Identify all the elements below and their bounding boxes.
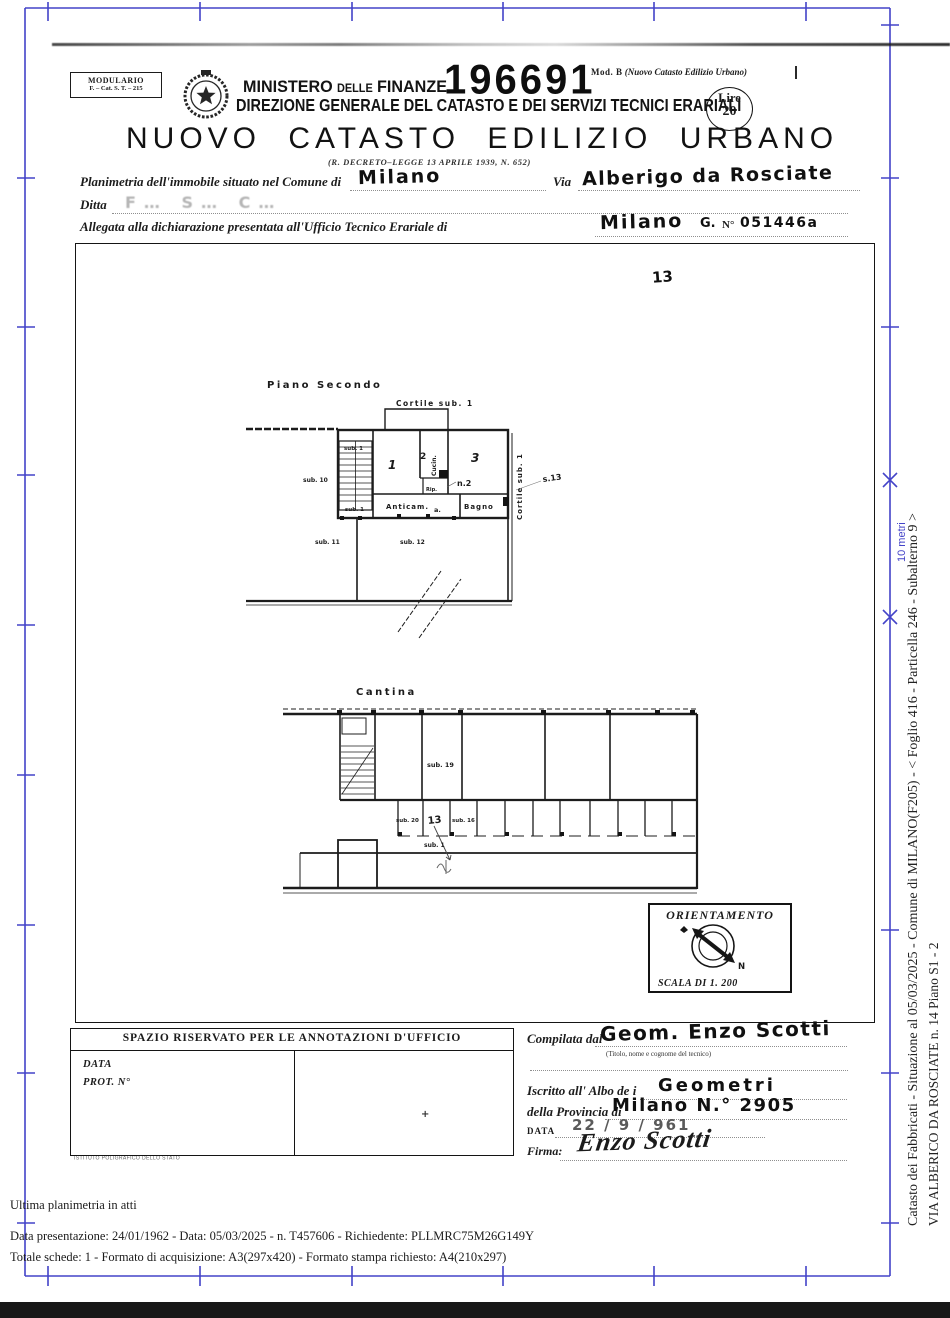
ministry-word3: FINANZE xyxy=(377,77,447,96)
pencil-n2: n.2 xyxy=(457,479,471,488)
direzione-title: DIREZIONE GENERALE DEL CATASTO E DEI SER… xyxy=(236,96,741,116)
mod-b-suffix: (Nuovo Catasto Edilizio Urbano) xyxy=(625,67,747,77)
dotted-fill-line xyxy=(530,1070,848,1071)
cantina-title: Cantina xyxy=(356,687,417,698)
signature-handwritten: Enzo Scotti xyxy=(576,1124,714,1159)
bollo-value: 20 xyxy=(707,105,752,119)
compass-icon: N xyxy=(650,919,790,973)
data-label: DATA xyxy=(527,1126,555,1136)
room1-label: 1 xyxy=(388,458,396,472)
annotations-prot-label: PROT. N° xyxy=(83,1077,130,1088)
rip-label: Rip. xyxy=(426,487,437,493)
orientation-box: ORIENTAMENTO N SCALA DI 1. 200 xyxy=(648,903,792,993)
bottom-bar xyxy=(0,1302,950,1318)
room2-label: 2 xyxy=(420,452,426,462)
mod-b-label: Mod. B (Nuovo Catasto Edilizio Urbano) xyxy=(591,67,747,77)
sub20-label: sub. 20 xyxy=(396,818,419,824)
scale-label: SCALA DI 1. 200 xyxy=(658,978,738,989)
ministry-title: MINISTERO DELLE FINANZE xyxy=(243,77,447,97)
stray-mark xyxy=(795,66,797,79)
bollo-lire: Lire xyxy=(707,92,752,105)
ministry-word2: DELLE xyxy=(337,83,373,95)
comune-handwritten: Milano xyxy=(358,165,442,189)
piano-secondo-plan: Piano Secondo Cortile sub. 1 xyxy=(246,380,562,638)
compilata-hint: (Titolo, nome e cognome del tecnico) xyxy=(606,1050,711,1058)
pencil-13-cantina: 13 xyxy=(427,815,442,827)
provincia-handwritten: Milano N.° 2905 xyxy=(612,1095,796,1116)
cortile-right-label: Cortile sub. 1 xyxy=(516,453,524,520)
cantina-pillar-marks xyxy=(337,710,695,836)
stair-sub-bottom-label: sub. 1 xyxy=(345,507,364,513)
cantina-walls xyxy=(283,709,697,893)
ministry-word1: MINISTERO xyxy=(243,77,333,96)
sub16-label: sub. 16 xyxy=(452,818,475,824)
printer-credit: ISTITUTO POLIGRAFICO DELLO STATO xyxy=(74,1156,180,1161)
ufficio-handwritten: Milano xyxy=(600,210,684,234)
cucina-label: Cucin. xyxy=(431,455,438,476)
door-note-label: a. xyxy=(434,506,441,514)
modulario-box: MODULARIO F. – Cat. S. T. – 215 xyxy=(70,72,162,98)
margin-vertical-text-1: Catasto dei Fabbricati - Situazione al 0… xyxy=(906,513,922,1226)
firma-label: Firma: xyxy=(527,1144,562,1159)
via-label: Via xyxy=(553,174,571,190)
dotted-fill-line xyxy=(350,190,546,191)
ditta-label: Ditta xyxy=(80,197,107,213)
dotted-fill-line xyxy=(595,236,848,237)
annotations-header: SPAZIO RISERVATO PER LE ANNOTAZIONI D'UF… xyxy=(71,1029,513,1051)
anticamera-label: Anticam. xyxy=(386,503,429,511)
mod-b-prefix: Mod. B xyxy=(591,67,623,77)
sub19-label: sub. 19 xyxy=(427,761,454,769)
sub12-label: sub. 12 xyxy=(400,539,425,546)
sub1-cantina-label: sub. 1 xyxy=(424,842,445,849)
margin-vertical-text-2: VIA ALBERICO DA ROSCIATE n. 14 Piano S1 … xyxy=(926,942,942,1226)
bagno-label: Bagno xyxy=(464,503,494,511)
comune-label: Planimetria dell'immobile situato nel Co… xyxy=(80,174,341,190)
pencil-s13: s.13 xyxy=(542,472,562,484)
scan-smudge-line xyxy=(52,43,950,46)
ditta-handwritten-faint: F… S… C… xyxy=(125,193,282,212)
footer-line-3: Totale schede: 1 - Formato di acquisizio… xyxy=(10,1250,506,1265)
annotations-divider xyxy=(294,1050,295,1155)
room3-label: 3 xyxy=(471,451,479,465)
dotted-fill-line xyxy=(595,1046,847,1047)
dotted-fill-line xyxy=(112,213,848,214)
ufficio-label: Allegata alla dichiarazione presentata a… xyxy=(80,219,447,235)
cortile-top-label: Cortile sub. 1 xyxy=(396,399,474,408)
footer-line-2: Data presentazione: 24/01/1962 - Data: 0… xyxy=(10,1229,534,1244)
dotted-fill-line xyxy=(578,190,860,191)
dotted-fill-line xyxy=(560,1160,847,1161)
annotations-data-label: DATA xyxy=(83,1059,112,1070)
stair-sub-label: sub. 1 xyxy=(344,446,363,452)
sub11-label: sub. 11 xyxy=(315,539,340,546)
compilata-label: Compilata dal xyxy=(527,1031,602,1047)
annotations-pencil-mark: + xyxy=(421,1109,429,1120)
footer-line-1: Ultima planimetria in atti xyxy=(10,1198,137,1213)
document-title: NUOVO CATASTO EDILIZIO URBANO xyxy=(126,122,838,156)
cantina-plan: Cantina xyxy=(283,687,697,893)
scanned-cadastral-document: MODULARIO F. – Cat. S. T. – 215 MINISTER… xyxy=(0,0,950,1318)
n-label: N° xyxy=(722,219,734,231)
modulario-line1: MODULARIO xyxy=(71,76,161,85)
g-handwritten: G. xyxy=(700,216,716,231)
annotations-box: SPAZIO RISERVATO PER LE ANNOTAZIONI D'UF… xyxy=(70,1028,514,1156)
piano-secondo-title: Piano Secondo xyxy=(267,380,382,391)
state-emblem-icon xyxy=(180,68,232,122)
n-value-handwritten: 051446a xyxy=(740,215,818,231)
piano-secondo-walls xyxy=(246,409,541,638)
compass-north-label: N xyxy=(738,962,745,972)
albo-handwritten: Geometri xyxy=(658,1075,776,1096)
modulario-line2: F. – Cat. S. T. – 215 xyxy=(71,85,161,92)
sub10-label: sub. 10 xyxy=(303,477,328,484)
